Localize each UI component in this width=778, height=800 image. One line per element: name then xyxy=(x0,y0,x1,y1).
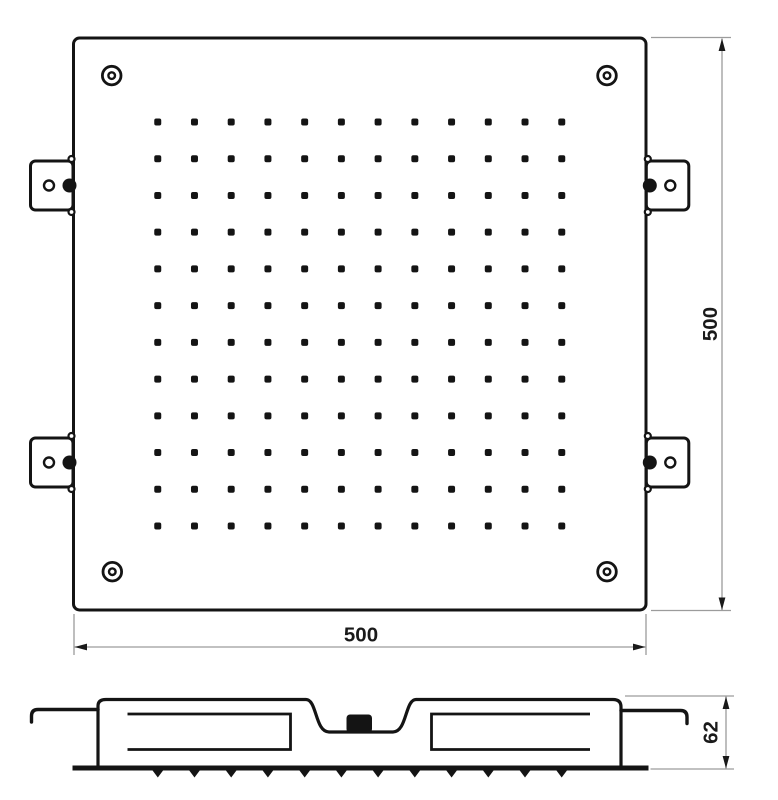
nozzle-dot xyxy=(411,523,418,530)
nozzle-dot xyxy=(301,412,308,419)
nozzle-dot xyxy=(301,449,308,456)
nozzle-dot xyxy=(485,229,492,236)
hook-flange-right xyxy=(621,711,687,724)
nozzle-dot xyxy=(191,119,198,126)
nozzle-dot xyxy=(264,119,271,126)
mounting-bracket-left-lower xyxy=(31,433,77,492)
nozzle-dot xyxy=(264,412,271,419)
nozzle-dot xyxy=(558,119,565,126)
technical-drawing: 500 500 62 xyxy=(0,0,778,800)
hook-flange-left xyxy=(32,710,99,723)
nozzle-dot xyxy=(522,339,529,346)
nozzle-dot xyxy=(228,265,235,272)
nozzle-dot xyxy=(558,523,565,530)
nozzle-dot xyxy=(485,302,492,309)
nozzle-dot xyxy=(448,119,455,126)
nozzle-dot xyxy=(154,486,161,493)
nozzle-tooth xyxy=(482,770,494,778)
nozzle-dot xyxy=(228,155,235,162)
nozzle-dot xyxy=(522,449,529,456)
nozzle-dot xyxy=(522,119,529,126)
nozzle-dot xyxy=(485,449,492,456)
dimension-label-width: 500 xyxy=(344,624,378,647)
nozzle-dot xyxy=(558,192,565,199)
nozzle-dot xyxy=(375,412,382,419)
nozzle-dot xyxy=(411,229,418,236)
nozzle-dot xyxy=(264,523,271,530)
nozzle-dot xyxy=(154,192,161,199)
nozzle-dot xyxy=(522,229,529,236)
nozzle-dot xyxy=(228,449,235,456)
nozzle-dot xyxy=(522,192,529,199)
nozzle-dot xyxy=(522,376,529,383)
nozzle-dot xyxy=(191,302,198,309)
nozzle-dot xyxy=(411,376,418,383)
nozzle-dot xyxy=(448,449,455,456)
nozzle-dot xyxy=(448,229,455,236)
nozzle-dot xyxy=(375,119,382,126)
nozzle-dot xyxy=(485,339,492,346)
nozzle-dot xyxy=(191,376,198,383)
nozzle-dot xyxy=(154,229,161,236)
nozzle-dot xyxy=(448,486,455,493)
nozzle-dot xyxy=(522,155,529,162)
nozzle-dot xyxy=(264,265,271,272)
nozzle-tooth xyxy=(225,770,237,778)
arrowhead-down-icon xyxy=(723,756,730,769)
nozzle-dot xyxy=(558,302,565,309)
nozzle-dot xyxy=(485,376,492,383)
arrowhead-left-icon xyxy=(75,644,88,651)
nozzle-dot xyxy=(522,265,529,272)
nozzle-dot xyxy=(154,449,161,456)
mounting-bracket-right-upper xyxy=(643,156,689,215)
nozzle-dot xyxy=(191,339,198,346)
nozzle-dot xyxy=(264,192,271,199)
nozzle-dot xyxy=(522,412,529,419)
nozzle-tooth xyxy=(299,770,311,778)
nozzle-dot xyxy=(522,302,529,309)
nozzle-dot xyxy=(228,339,235,346)
nozzle-dot xyxy=(448,523,455,530)
nozzle-dot xyxy=(485,523,492,530)
section-view xyxy=(32,700,688,778)
nozzle-dot xyxy=(338,339,345,346)
nozzle-dot xyxy=(558,412,565,419)
dimension-label-depth: 62 xyxy=(700,721,723,744)
nozzle-dot xyxy=(228,192,235,199)
nozzle-dot xyxy=(264,229,271,236)
nozzle-dot xyxy=(191,486,198,493)
nozzle-dot xyxy=(154,155,161,162)
nozzle-dot xyxy=(375,265,382,272)
nozzle-dot xyxy=(301,486,308,493)
nozzle-dot xyxy=(228,523,235,530)
nozzle-dot xyxy=(191,192,198,199)
nozzle-dot xyxy=(338,302,345,309)
nozzle-teeth xyxy=(152,770,568,778)
nozzle-dot xyxy=(411,265,418,272)
nozzle-dot xyxy=(375,339,382,346)
nozzle-dot xyxy=(375,523,382,530)
nozzle-dot xyxy=(375,486,382,493)
nozzle-dot xyxy=(558,339,565,346)
nozzle-tooth xyxy=(409,770,421,778)
nozzle-dot xyxy=(411,486,418,493)
nozzle-dot xyxy=(154,302,161,309)
nozzle-dot xyxy=(228,302,235,309)
nozzle-dot xyxy=(191,412,198,419)
nozzle-dot xyxy=(154,265,161,272)
dimension-height-right: 500 xyxy=(651,38,731,611)
nozzle-dot xyxy=(228,376,235,383)
nozzle-dot xyxy=(411,339,418,346)
nozzle-dot xyxy=(228,119,235,126)
nozzle-dot xyxy=(375,449,382,456)
nozzle-dot xyxy=(558,229,565,236)
nozzle-dot xyxy=(264,302,271,309)
nozzle-dot xyxy=(191,265,198,272)
nozzle-dot xyxy=(338,523,345,530)
nozzle-dot xyxy=(301,229,308,236)
nozzle-dot xyxy=(264,486,271,493)
nozzle-dot xyxy=(558,449,565,456)
nozzle-tooth xyxy=(519,770,531,778)
nozzle-dot xyxy=(301,523,308,530)
nozzle-dot xyxy=(338,192,345,199)
dimension-width-bottom: 500 xyxy=(74,614,646,655)
nozzle-dot xyxy=(375,192,382,199)
nozzle-dot xyxy=(191,523,198,530)
dimension-depth-right: 62 xyxy=(625,696,734,769)
nozzle-dot xyxy=(301,376,308,383)
mounting-bracket-left-upper xyxy=(31,156,77,215)
arrowhead-right-icon xyxy=(633,644,646,651)
nozzle-dot xyxy=(154,376,161,383)
arrowhead-up-icon xyxy=(723,697,730,710)
nozzle-dot xyxy=(191,229,198,236)
nozzle-dot xyxy=(191,449,198,456)
nozzle-dot xyxy=(301,155,308,162)
nozzle-dot xyxy=(301,192,308,199)
nozzle-dot xyxy=(301,119,308,126)
nozzle-dot xyxy=(154,119,161,126)
nozzle-dot xyxy=(485,192,492,199)
nozzle-dot xyxy=(485,155,492,162)
nozzle-dot xyxy=(411,192,418,199)
nozzle-dot xyxy=(264,155,271,162)
nozzle-dot xyxy=(411,155,418,162)
nozzle-dot xyxy=(338,119,345,126)
nozzle-dot xyxy=(338,155,345,162)
nozzle-dot xyxy=(558,376,565,383)
nozzle-dot xyxy=(448,376,455,383)
nozzle-tooth xyxy=(446,770,458,778)
nozzle-dot xyxy=(301,339,308,346)
nozzle-dot xyxy=(411,449,418,456)
nozzle-dot xyxy=(228,229,235,236)
nozzle-tooth xyxy=(556,770,568,778)
nozzle-dot xyxy=(448,302,455,309)
nozzle-dot xyxy=(522,523,529,530)
water-inlet-knob xyxy=(347,715,373,733)
nozzle-dot xyxy=(338,486,345,493)
arrowhead-down-icon xyxy=(719,598,726,611)
nozzle-dot xyxy=(411,302,418,309)
nozzle-dot xyxy=(485,412,492,419)
nozzle-dot xyxy=(411,412,418,419)
nozzle-dot xyxy=(264,376,271,383)
nozzle-dot xyxy=(448,412,455,419)
nozzle-dot xyxy=(338,376,345,383)
housing-profile xyxy=(98,700,621,768)
nozzle-dot xyxy=(338,412,345,419)
nozzle-dot xyxy=(485,119,492,126)
nozzle-dot xyxy=(448,155,455,162)
nozzle-dot xyxy=(154,523,161,530)
nozzle-dot xyxy=(375,229,382,236)
nozzle-dot xyxy=(338,229,345,236)
nozzle-dot xyxy=(448,339,455,346)
nozzle-dot xyxy=(558,155,565,162)
nozzle-tooth xyxy=(152,770,164,778)
nozzle-tooth xyxy=(335,770,347,778)
nozzle-dot xyxy=(448,192,455,199)
nozzle-dot xyxy=(558,265,565,272)
nozzle-dot xyxy=(375,155,382,162)
nozzle-dot xyxy=(228,412,235,419)
mounting-bracket-right-lower xyxy=(643,433,689,492)
nozzle-tooth xyxy=(189,770,201,778)
nozzle-dot xyxy=(485,265,492,272)
nozzle-dot xyxy=(301,302,308,309)
nozzle-dot xyxy=(301,265,308,272)
nozzle-dot xyxy=(228,486,235,493)
nozzle-dot xyxy=(411,119,418,126)
nozzle-dot xyxy=(448,265,455,272)
top-view xyxy=(31,38,689,610)
nozzle-dot xyxy=(191,155,198,162)
nozzle-dot xyxy=(264,449,271,456)
arrowhead-up-icon xyxy=(719,39,726,52)
nozzle-tooth xyxy=(372,770,384,778)
nozzle-dot xyxy=(154,339,161,346)
nozzle-dot xyxy=(522,486,529,493)
dimension-label-height: 500 xyxy=(699,307,722,341)
nozzle-dot xyxy=(375,376,382,383)
nozzle-dot xyxy=(338,265,345,272)
nozzle-dot xyxy=(485,486,492,493)
nozzle-dot xyxy=(264,339,271,346)
nozzle-dot xyxy=(375,302,382,309)
nozzle-dot xyxy=(338,449,345,456)
nozzle-dot xyxy=(154,412,161,419)
nozzle-tooth xyxy=(262,770,274,778)
nozzle-dot xyxy=(558,486,565,493)
